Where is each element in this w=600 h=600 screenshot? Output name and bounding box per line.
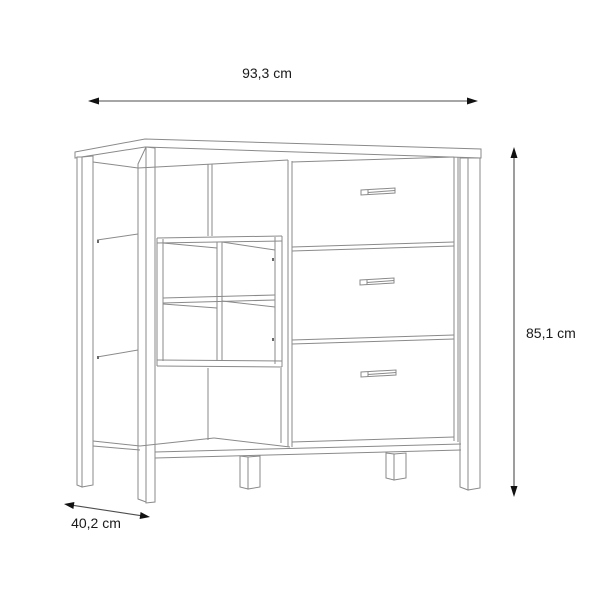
height-dimension: 85,1 cm [511,147,576,497]
arrow-up-icon [511,147,518,158]
height-dimension-label: 85,1 cm [526,325,576,341]
top-panel [75,139,481,158]
depth-dimension-label: 40,2 cm [71,515,121,531]
front-left-leg [138,147,155,503]
shelf-pin [97,240,99,243]
back-right-leg [386,453,406,480]
arrow-downright-icon [140,512,150,519]
drawer-2-handle [360,278,394,285]
width-dimension-label: 93,3 cm [242,65,292,81]
drawer-3 [292,370,454,442]
drawer-1-handle [361,188,395,195]
depth-dimension: 40,2 cm [64,502,150,531]
arrow-left-icon [88,98,99,105]
drawer-1 [292,188,454,251]
open-top-compartment [138,160,288,236]
drawer-3-handle [361,370,396,377]
bottom-rail [155,444,461,458]
dimension-diagram: 93,3 cm 85,1 cm 40,2 cm [0,0,600,600]
drawer-section [292,157,458,442]
left-side-panel [93,162,138,359]
back-left-leg [77,156,93,487]
sideboard-line-drawing: 93,3 cm 85,1 cm 40,2 cm [0,0,600,600]
arrow-down-icon [511,486,518,497]
width-dimension: 93,3 cm [88,65,478,105]
shelf-pin [97,356,99,359]
cube-shelf-insert [157,236,282,367]
arrow-right-icon [467,98,478,105]
shelf-pin [272,338,274,341]
front-right-leg [460,158,480,490]
cabinet-drawing [75,139,481,503]
center-divider [288,160,292,447]
shelf-pin [272,258,274,261]
back-center-leg [240,456,260,489]
back-wall-seams [208,368,281,443]
arrow-upleft-icon [64,502,74,509]
bottom-shelf [93,438,290,450]
drawer-2 [292,278,454,344]
